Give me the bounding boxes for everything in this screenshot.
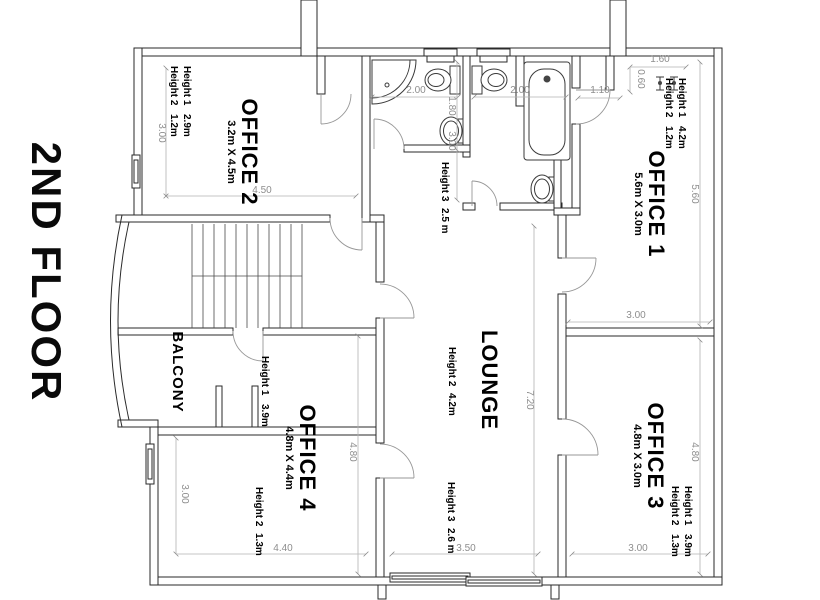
wall-wc2-bottom-b <box>500 203 562 210</box>
dim-nook-depth: 0.60 <box>635 69 646 89</box>
stairs <box>192 224 302 328</box>
dim-office3-length: 4.80 <box>689 442 700 462</box>
lounge-h2-value: 4.2m <box>446 393 457 416</box>
office3-h2-value: 1.3m <box>669 534 680 557</box>
wall-wc-divider <box>463 56 470 157</box>
dim-bath-right: 2.00 <box>510 85 530 96</box>
lounge-height: Height 2 4.2m <box>446 347 457 416</box>
office3-size: 4.8m X 3.0m <box>631 424 643 488</box>
office1-name: OFFICE 1 <box>644 150 669 257</box>
wall-stairhall-bottom-b <box>263 328 384 335</box>
bathtub-faucet <box>544 76 551 83</box>
store-h3-label: Height 3 <box>445 482 456 522</box>
office4-height: Height 2 1.3m <box>253 487 264 556</box>
office1-h2-value: 1.2m <box>663 126 674 149</box>
balcony-h1-label: Height 1 <box>259 356 270 396</box>
wall-lounge-left-b <box>376 318 384 443</box>
office3-h1-value: 3.9m <box>682 534 693 557</box>
balcony-curve-outer <box>111 215 123 427</box>
dim-nook-width: 1.60 <box>650 54 670 65</box>
toilet-2-bowl <box>481 69 507 91</box>
dim-store-width: 3.50 <box>456 543 476 554</box>
dim-office4-side: 3.00 <box>179 484 190 504</box>
office1-h2-label: Height 2 <box>663 78 674 118</box>
window-office2-left-sill <box>134 160 138 183</box>
office1-h1-label: Height 1 <box>676 78 687 118</box>
wall-bath-left <box>362 56 370 222</box>
wall-wc2-bottom-a <box>463 203 475 210</box>
hallway-h3-value: 2.5 m <box>439 208 450 234</box>
office2-size: 3.2m X 4.5m <box>225 120 237 184</box>
dim-office3-width: 3.00 <box>628 543 648 554</box>
door-arc-lounge-office1 <box>562 258 596 292</box>
window-bottom-1-sill <box>392 576 468 579</box>
dim-office1-door: 1.10 <box>590 85 610 96</box>
door-arc-office2 <box>321 94 351 124</box>
office2-h2-label: Height 2 <box>168 66 179 106</box>
door-arc-lounge-west <box>380 284 414 318</box>
office2-h1-value: 2.9m <box>181 114 192 137</box>
door-arc-balcony <box>233 331 263 361</box>
wall-lounge-left-c <box>376 478 384 577</box>
hallway-h3-label: Height 3 <box>439 162 450 202</box>
wall-lounge-right-a <box>558 215 566 258</box>
wall-office1-office3-divider <box>566 328 714 336</box>
dim-office1-length: 5.60 <box>689 184 700 204</box>
window-bath-2 <box>477 49 510 56</box>
dim-office1-width: 3.00 <box>626 310 646 321</box>
wall-balcony-bottom <box>118 420 158 427</box>
balcony-nook-left <box>216 386 222 427</box>
dim-lounge-length: 7.20 <box>524 390 535 410</box>
office2-h2-value: 1.2m <box>168 114 179 137</box>
office1-label: OFFICE 1 5.6m X 3.0m <box>632 150 669 257</box>
office3-heights: Height 1 3.9m Height 2 1.3m <box>669 486 693 557</box>
door-arc-office3 <box>562 419 598 455</box>
door-arc-shower-room <box>374 119 404 149</box>
wall-bath-right-b <box>572 124 580 215</box>
dim-bath-left: 2.00 <box>406 85 426 96</box>
dim-office4-width: 4.40 <box>273 543 293 554</box>
wall-niche-bottom <box>554 208 580 215</box>
dim-bath-inner: 1.80 <box>446 96 457 116</box>
window-office4-left-sill <box>148 449 152 479</box>
floor-plan: 2ND FLOOR OFFICE 2 3.2m X 4.5m Height 1 … <box>0 0 820 600</box>
chimney-left <box>301 0 317 56</box>
office3-name: OFFICE 3 <box>643 402 668 509</box>
door-arc-store <box>380 444 414 478</box>
office3-h2-label: Height 2 <box>669 486 680 526</box>
office4-name: OFFICE 4 <box>295 404 320 511</box>
office4-label: OFFICE 4 4.8m X 4.4m <box>283 404 320 511</box>
stub-below-bottom-right <box>551 585 559 599</box>
office4-size: 4.8m X 4.4m <box>283 426 295 490</box>
wall-wc1-bottom <box>404 145 470 152</box>
balcony-name: BALCONY <box>169 331 186 412</box>
lounge-name: LOUNGE <box>477 330 502 430</box>
chimney-right <box>610 0 626 56</box>
office1-h1-value: 4.2m <box>676 126 687 149</box>
office3-label: OFFICE 3 4.8m X 3.0m <box>631 402 668 509</box>
dim-office2-width: 4.50 <box>252 185 272 196</box>
wall-outer-right <box>714 48 722 585</box>
office2-h1-label: Height 1 <box>181 66 192 106</box>
office3-h1-label: Height 1 <box>682 486 693 526</box>
wall-sink-niche <box>554 158 561 215</box>
office2-door-stub <box>317 56 325 94</box>
window-bath-1-sill <box>427 56 454 62</box>
wall-lounge-left-a <box>376 222 384 282</box>
wall-wc2-bath-divider <box>516 56 524 106</box>
stub-below-bottom-left <box>378 585 386 599</box>
floor-plan-page: 2ND FLOOR OFFICE 2 3.2m X 4.5m Height 1 … <box>0 0 820 600</box>
lounge-h2-label: Height 2 <box>446 347 457 387</box>
dim-bath-depth: 3.00 <box>446 131 457 151</box>
balcony-height: Height 1 3.9m <box>259 356 270 427</box>
plan-title: 2ND FLOOR <box>23 142 70 403</box>
office4-h2-label: Height 2 <box>253 487 264 527</box>
wall-lounge-right-c <box>558 455 566 577</box>
door-arc-wc2 <box>472 181 497 206</box>
store-h3-value: 2.6 m <box>445 528 456 554</box>
balcony-curve-inner <box>118 222 129 420</box>
office2-heights: Height 1 2.9m Height 2 1.2m <box>168 66 192 137</box>
office1-heights: Height 1 4.2m Height 2 1.2m <box>663 78 687 149</box>
toilet-1-bowl <box>425 69 451 91</box>
door-arc-stairhall <box>330 218 362 250</box>
dim-lounge-side: 4.80 <box>347 442 358 462</box>
store-height: Height 3 2.6 m <box>445 482 456 554</box>
wall-office4-top <box>158 427 377 435</box>
office1-size: 5.6m X 3.0m <box>632 172 644 236</box>
wall-lounge-right-b <box>558 294 566 419</box>
windows <box>132 49 542 586</box>
radiator-1 <box>656 77 664 90</box>
balcony-h1-value: 3.9m <box>259 404 270 427</box>
window-bath-1 <box>424 49 457 56</box>
hallway-height: Height 3 2.5 m <box>439 162 450 234</box>
dim-office2-side: 3.00 <box>156 123 167 143</box>
window-bath-2-sill <box>480 56 507 62</box>
office4-h2-value: 1.3m <box>253 533 264 556</box>
balcony-nook-right <box>252 386 258 427</box>
window-bottom-2-sill <box>468 580 540 583</box>
wall-stairhall-top-a <box>116 215 330 222</box>
wall-bath-right-a <box>572 56 580 88</box>
wall-outer-left-upper <box>134 48 142 222</box>
